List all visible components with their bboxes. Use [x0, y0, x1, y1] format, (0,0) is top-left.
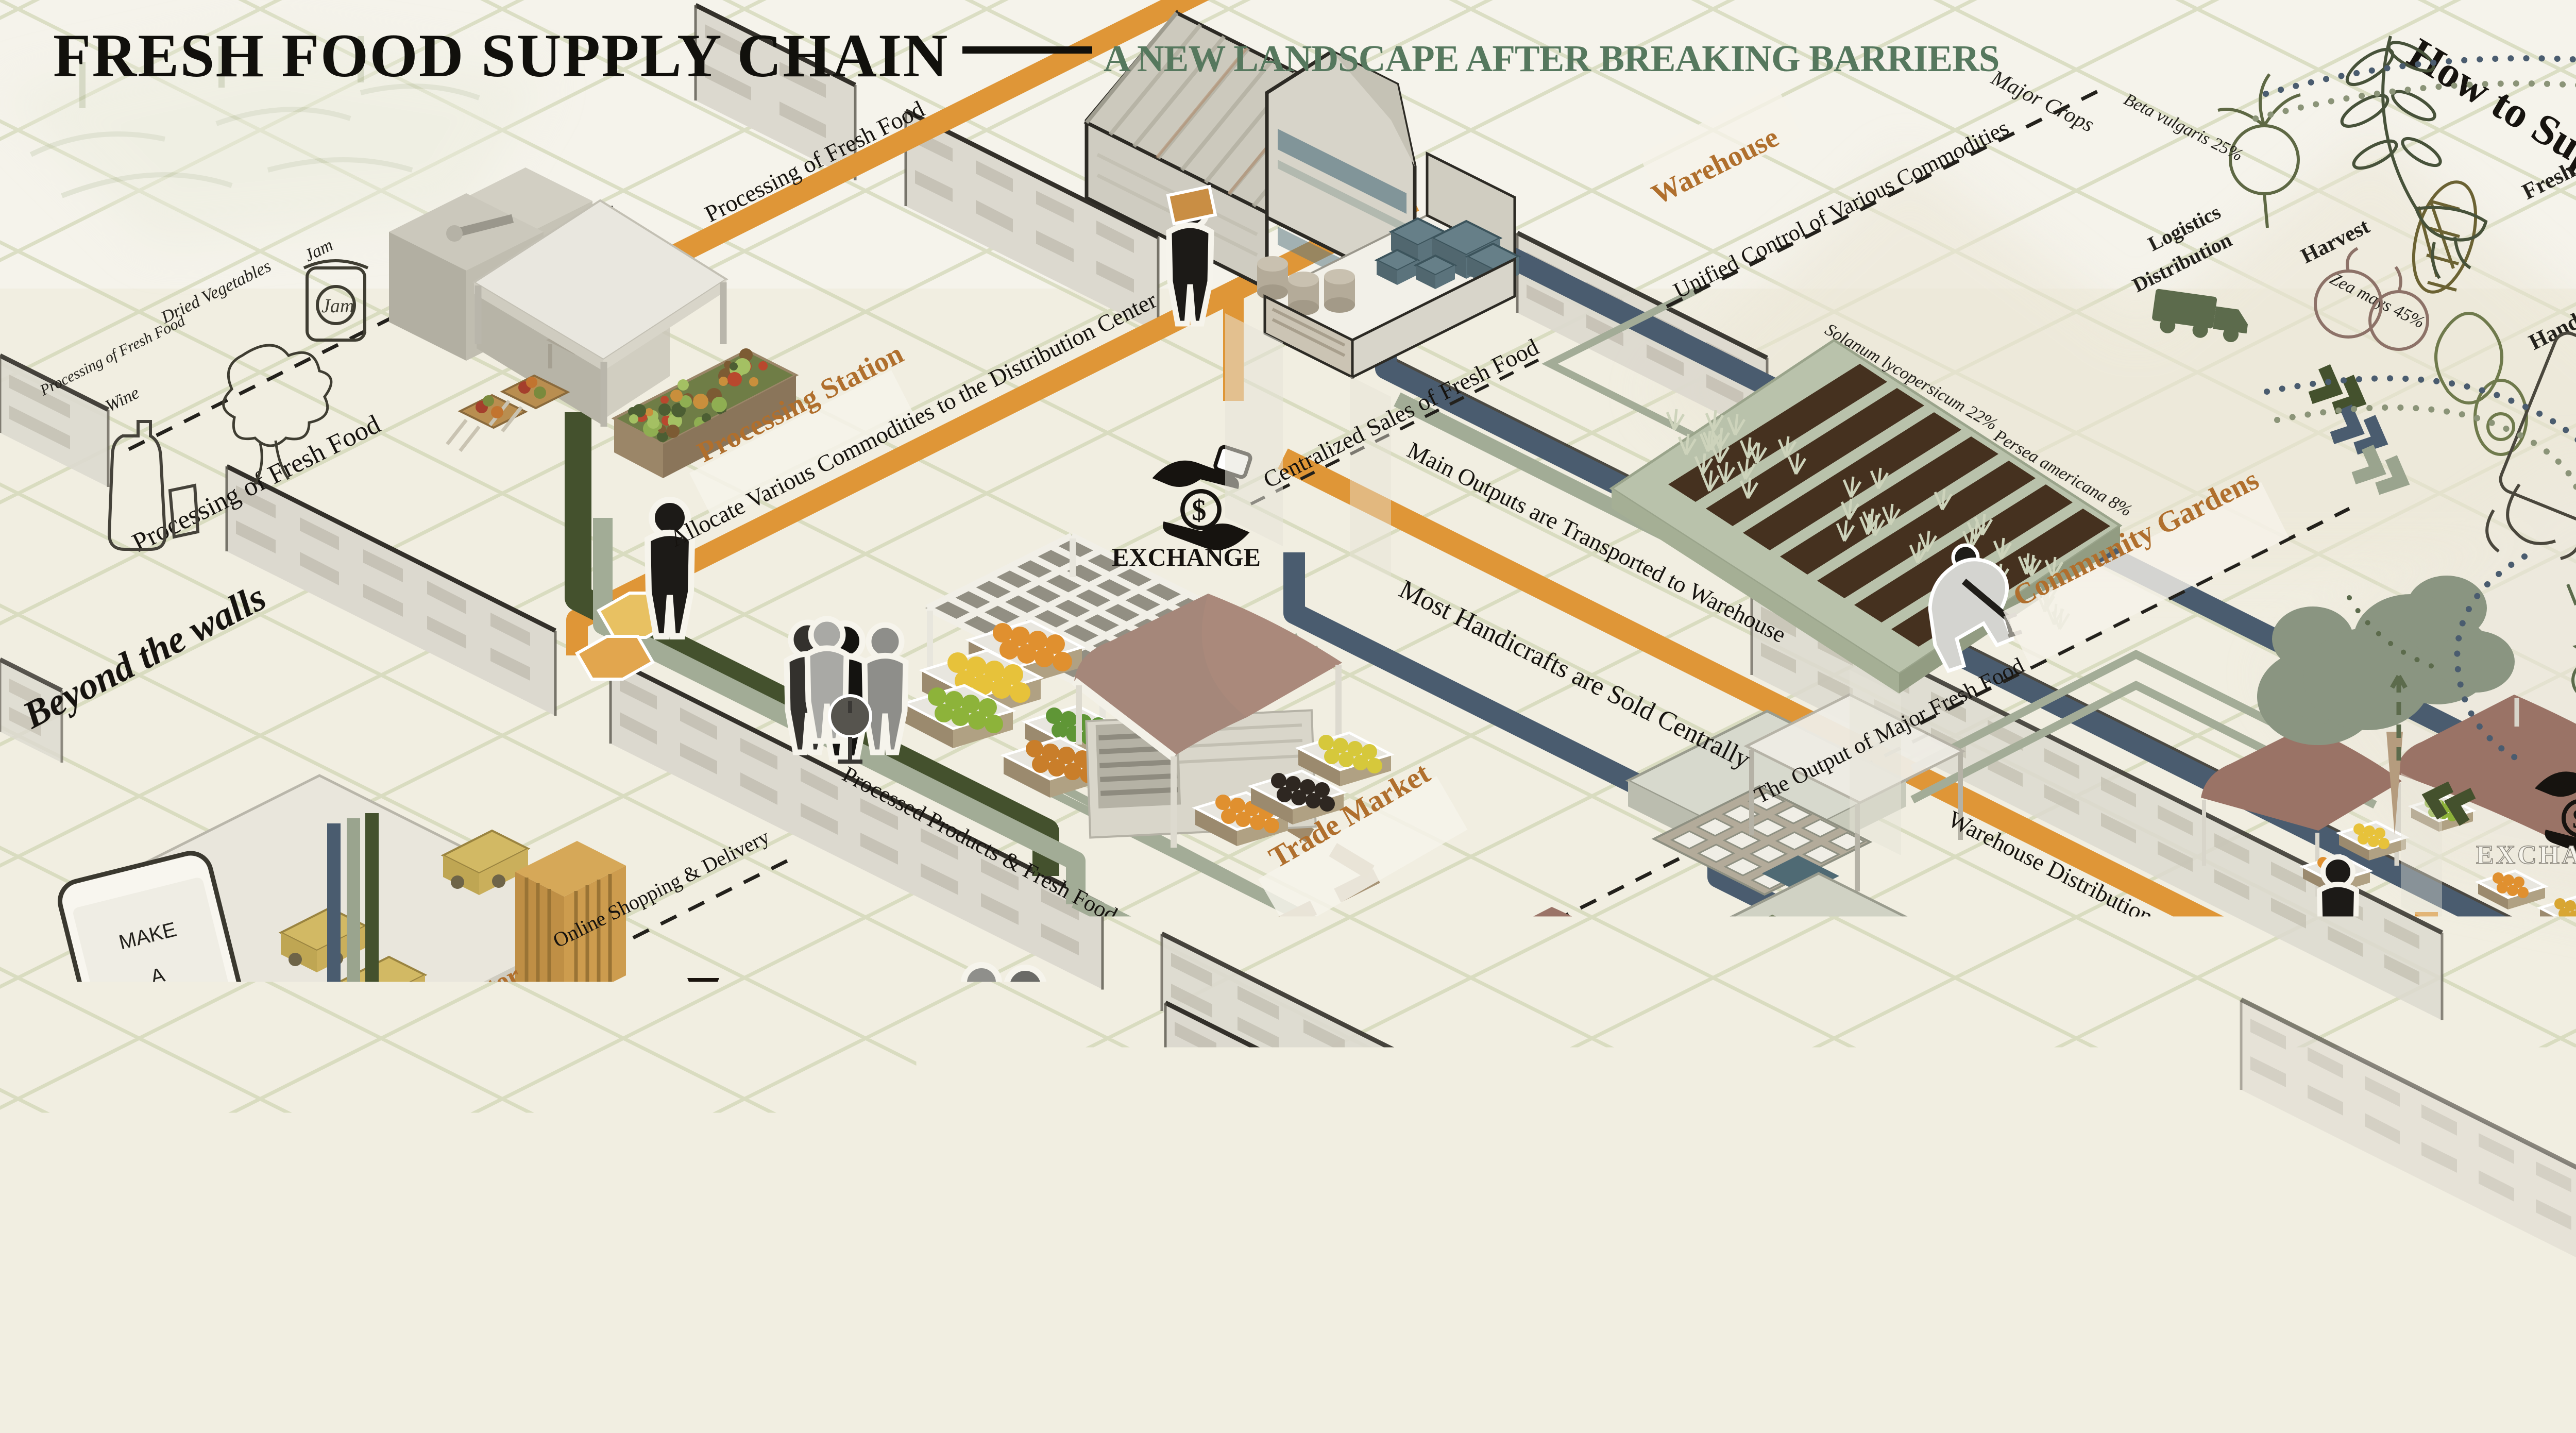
svg-text:$: $: [1192, 494, 1206, 527]
svg-text:$: $: [2572, 803, 2576, 834]
svg-text:FUND: FUND: [671, 1096, 745, 1125]
svg-text:A NEW LANDSCAPE AFTER BREAKING: A NEW LANDSCAPE AFTER BREAKING BARRIERS: [1104, 38, 1999, 79]
svg-text:FRESH FOOD SUPPLY CHAIN: FRESH FOOD SUPPLY CHAIN: [53, 21, 949, 90]
svg-text:$: $: [688, 1024, 710, 1072]
svg-text:Jam: Jam: [321, 295, 354, 317]
svg-text:EXCHANGE: EXCHANGE: [2476, 840, 2576, 870]
svg-text:EXCHANGE: EXCHANGE: [1112, 543, 1261, 571]
